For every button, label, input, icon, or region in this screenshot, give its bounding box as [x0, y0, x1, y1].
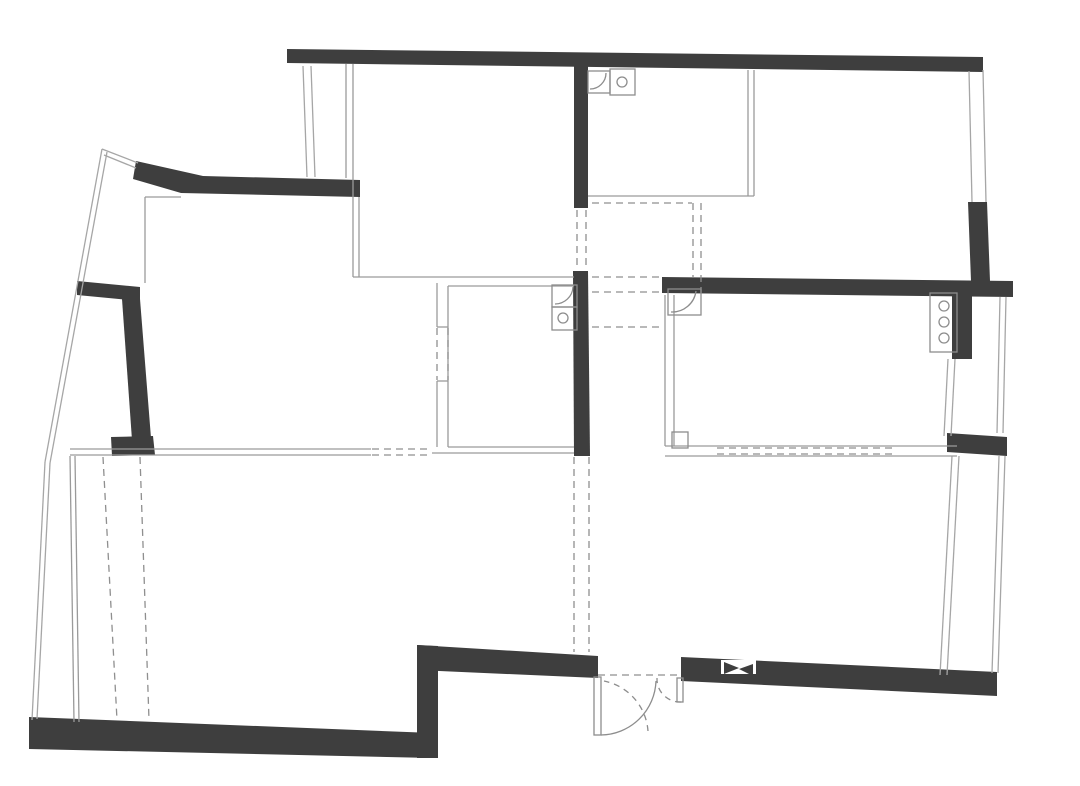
right-block-wall	[947, 433, 1007, 456]
thin-lines-layer	[70, 64, 957, 722]
lower-left-inner-a	[70, 456, 74, 722]
sink-right-arc	[671, 291, 696, 312]
heater-knob-1	[939, 301, 949, 311]
central-wall-upper	[574, 62, 588, 208]
bottom-left-wall	[29, 717, 433, 758]
sink-top-arc	[590, 73, 606, 89]
right-face-upper-b	[1003, 297, 1006, 433]
left-wall	[122, 299, 151, 440]
wall-vent-layer	[721, 660, 756, 676]
window-topleft-a	[303, 66, 307, 177]
right-mid-wall	[952, 296, 972, 359]
livingroom-dash-v2	[140, 457, 149, 720]
top-left-angled-wall	[133, 161, 360, 197]
mid-right-wall	[662, 277, 1013, 297]
entry-left-wall	[417, 645, 598, 678]
entry-door-leaf-main	[594, 677, 601, 735]
toilet-drain	[558, 313, 568, 323]
lower-left-inner-b	[75, 456, 79, 722]
windows-layer	[32, 66, 1006, 720]
floorplan-page	[0, 0, 1080, 786]
window-righttop-a	[969, 71, 972, 202]
floorplan-svg	[0, 0, 1080, 786]
walls-layer	[29, 49, 1013, 758]
balcony-edge-upper-b	[50, 152, 107, 463]
left-balcony-bar-wall	[77, 281, 140, 301]
heater-knob-2	[939, 317, 949, 327]
window-righttop-b	[983, 70, 986, 202]
balcony-edge-upper-a	[45, 149, 102, 462]
entry-door-leaf-small	[677, 678, 683, 702]
right-upper-wall	[968, 202, 990, 281]
left-wall-foot	[111, 436, 155, 456]
livingroom-dash-v1	[103, 457, 117, 720]
heater-knob-3	[939, 333, 949, 343]
kitchen-sink-drain	[617, 77, 627, 87]
right-face-upper-a	[997, 297, 1000, 433]
window-rightmid-a	[944, 359, 948, 436]
central-wall-lower	[573, 271, 590, 456]
kitchen-sink-basin-a	[588, 71, 610, 93]
window-topleft-b	[311, 66, 315, 177]
door-swing-arc-dashed	[604, 681, 648, 731]
window-rightlow-outer-b	[998, 456, 1005, 673]
window-rightlow-inner-b	[947, 456, 959, 675]
kitchen-sink-basin-b	[610, 69, 635, 95]
balcony-top-link-b	[104, 155, 136, 168]
window-rightmid-b	[951, 359, 955, 436]
window-rightlow-inner-a	[940, 456, 952, 675]
window-rightlow-outer-a	[992, 456, 999, 673]
sink-left-arc	[555, 287, 573, 304]
